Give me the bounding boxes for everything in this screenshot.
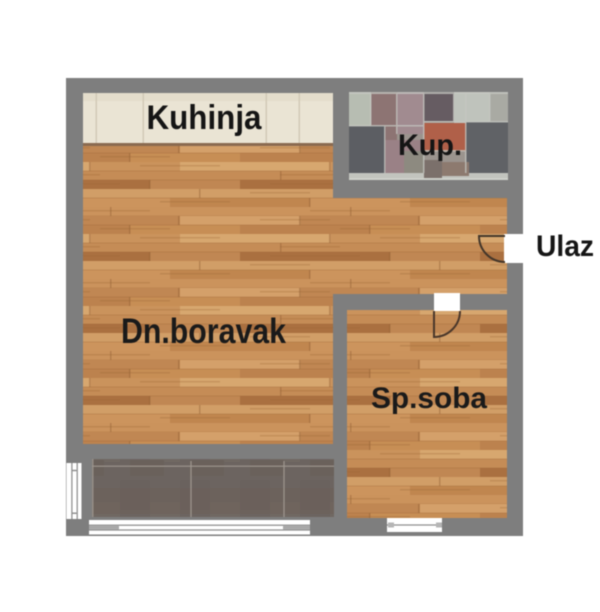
svg-text:Dn.boravak: Dn.boravak bbox=[121, 312, 286, 351]
svg-text:Ulaz: Ulaz bbox=[536, 230, 594, 263]
svg-text:Kuhinja: Kuhinja bbox=[147, 99, 263, 137]
svg-text:Kup.: Kup. bbox=[398, 129, 462, 162]
svg-text:Sp.soba: Sp.soba bbox=[371, 382, 487, 415]
